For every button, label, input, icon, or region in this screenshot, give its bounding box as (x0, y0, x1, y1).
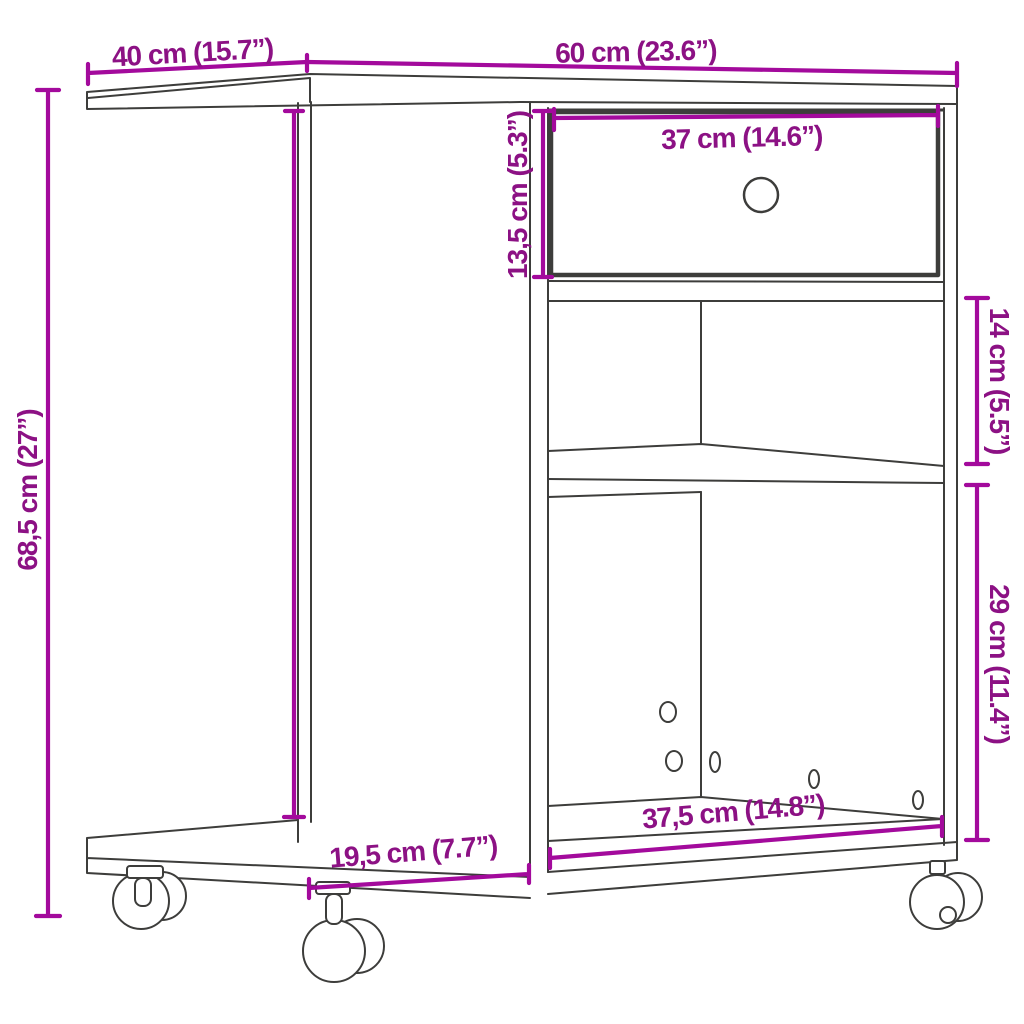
drawer-rail (548, 281, 944, 301)
base-board-edges (87, 820, 957, 898)
caster-front-center (303, 882, 384, 982)
caster-stem (930, 861, 945, 874)
screw-hole (913, 791, 923, 809)
screw-hole (710, 752, 720, 772)
dim-overall-height: 68,5 cm (27”) (12, 90, 60, 916)
drawer-knob-hole (744, 178, 778, 212)
screw-hole (809, 770, 819, 788)
dim-shelf-height-label: 14 cm (5.5”) (984, 308, 1015, 455)
dim-base-depth: 19,5 cm (7.7”) (309, 829, 529, 898)
caster-wheel (910, 875, 964, 929)
dim-compartment-height: 29 cm (11.4”) (966, 485, 1015, 840)
drawer-rail-lines (548, 281, 944, 301)
caster-axle-cap (940, 907, 956, 923)
dim-top-width: 60 cm (23.6”) (307, 34, 957, 86)
tabletop-edges (87, 74, 957, 109)
dim-shelf-height: 14 cm (5.5”) (966, 298, 1015, 464)
dim-top-width-label: 60 cm (23.6”) (555, 34, 717, 68)
dim-support-height (284, 111, 304, 817)
dim-compartment-height-label: 29 cm (11.4”) (984, 584, 1015, 744)
tabletop (87, 74, 957, 109)
support-panel-edges (298, 102, 311, 842)
screw-hole (666, 751, 682, 771)
screw-hole (660, 702, 676, 722)
dim-drawer-height: 13,5 cm (5.3”) (502, 111, 552, 279)
caster-plate (127, 866, 163, 878)
caster-fork (326, 894, 342, 924)
dim-drawer-height-label: 13,5 cm (5.3”) (502, 111, 533, 279)
caster-fork (135, 878, 151, 906)
base-board (87, 820, 957, 898)
caster-right (910, 861, 982, 929)
support-panel (298, 102, 311, 842)
dim-drawer-width-label: 37 cm (14.6”) (661, 120, 823, 155)
caster-wheel (303, 920, 365, 982)
dim-base-depth-label: 19,5 cm (7.7”) (328, 829, 498, 873)
furniture-outline (87, 74, 982, 982)
dim-overall-height-label: 68,5 cm (27”) (12, 409, 43, 570)
dim-support-height-line (284, 111, 304, 817)
dim-lower-width: 37,5 cm (14.8”) (550, 788, 942, 868)
middle-shelf (548, 301, 944, 797)
diagram-stage: 40 cm (15.7”) 60 cm (23.6”) 37 cm (14.6”… (0, 0, 1024, 1024)
dimension-diagram: 40 cm (15.7”) 60 cm (23.6”) 37 cm (14.6”… (0, 0, 1024, 1024)
shelf-edges (548, 444, 944, 497)
